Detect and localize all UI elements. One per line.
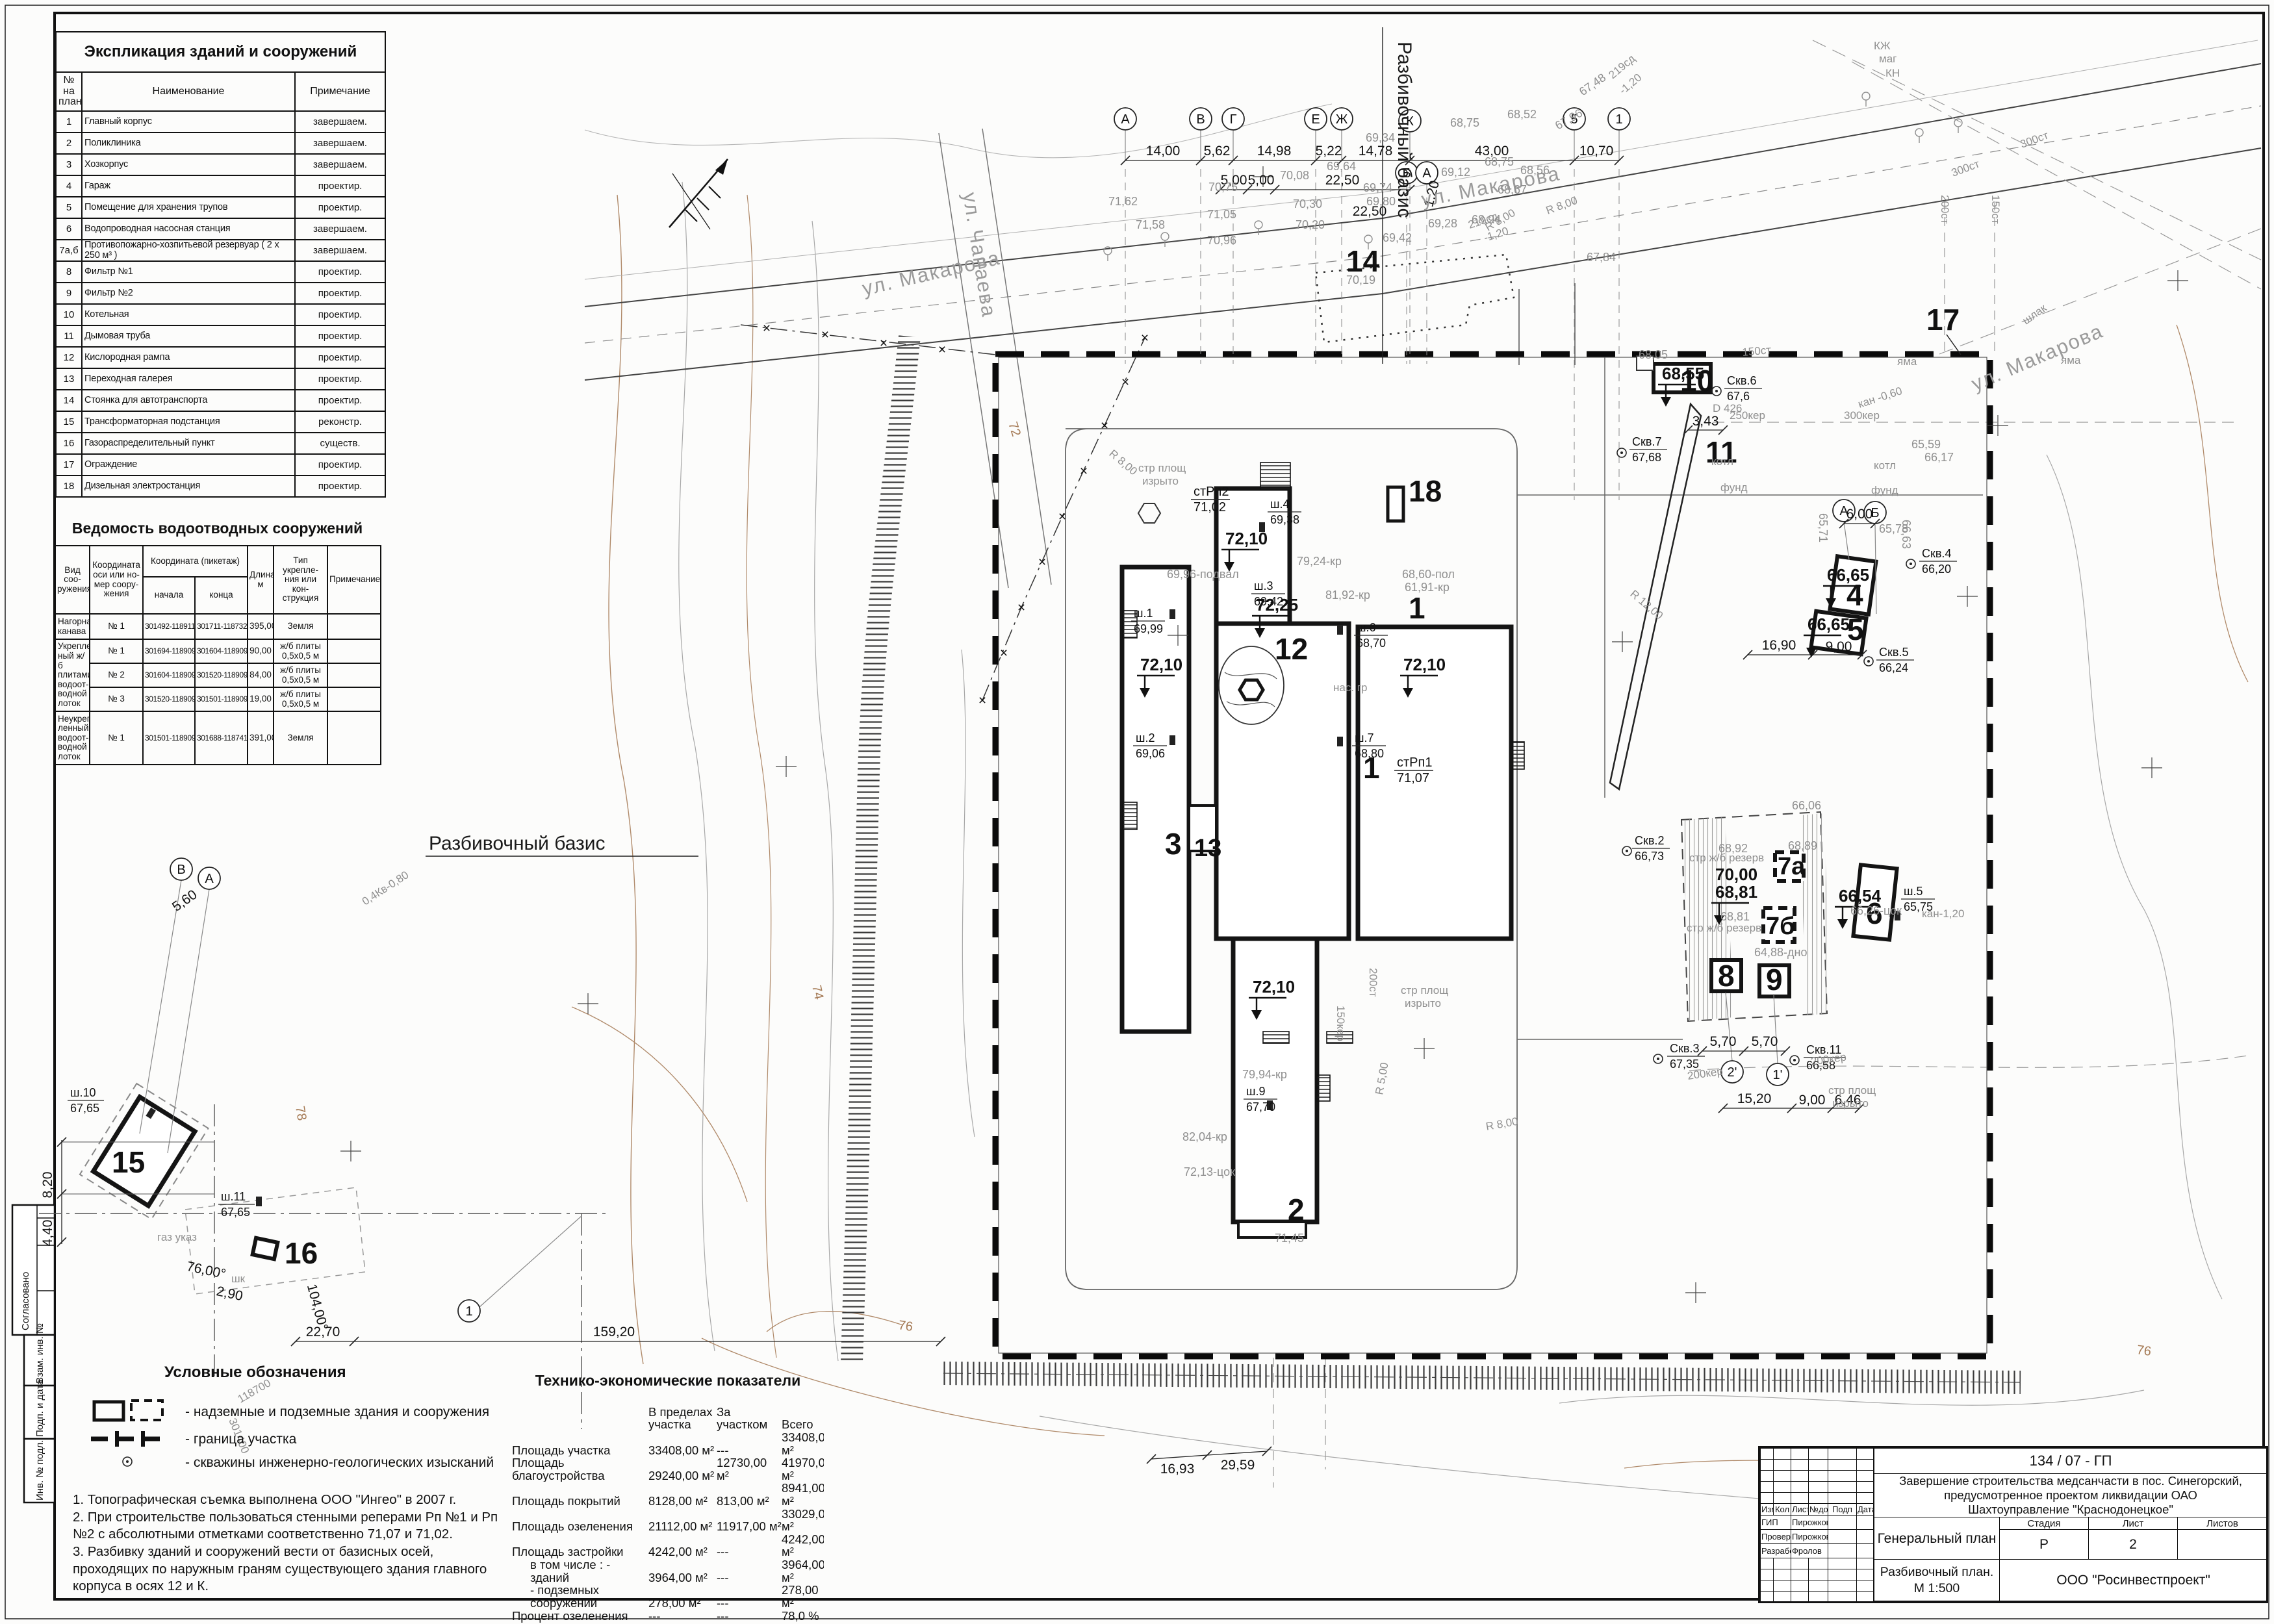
explication-row: 3Хозкорпусзавершаем. <box>56 154 385 175</box>
svg-text:R 5,00: R 5,00 <box>1373 1061 1390 1096</box>
svg-text:шлак: шлак <box>2020 301 2049 327</box>
parking-area <box>1316 255 1514 342</box>
borehole-3: Скв.3 <box>1670 1042 1699 1055</box>
svg-text:69,42: 69,42 <box>1254 595 1283 608</box>
pit-sh11: ш.11 <box>221 1190 246 1203</box>
benchmark-rp1: стРп1 <box>1397 755 1432 770</box>
tep-title: Технико-экономические показатели <box>512 1372 824 1389</box>
elev-68-55: 68,55 <box>1662 364 1704 383</box>
svg-text:70,75: 70,75 <box>1208 181 1238 194</box>
svg-text:кан -0,60: кан -0,60 <box>1856 385 1904 411</box>
legend-underground-building-icon <box>131 1401 162 1420</box>
svg-text:КН: КН <box>1885 67 1900 79</box>
elev-72-10-c: 72,10 <box>1403 655 1446 674</box>
svg-text:стр ж/б резерв: стр ж/б резерв <box>1689 852 1764 864</box>
svg-text:×: × <box>1141 331 1149 346</box>
svg-text:8,20: 8,20 <box>40 1172 55 1199</box>
axis-bubble-e: Е <box>1311 112 1320 127</box>
axis-bubble-g: Г <box>1230 112 1237 127</box>
svg-text:67,65: 67,65 <box>70 1102 99 1115</box>
svg-text:×: × <box>1038 555 1046 570</box>
stairs <box>1123 802 1137 830</box>
svg-text:72: 72 <box>1005 420 1023 438</box>
explication-row: 4Гаражпроектир. <box>56 175 385 197</box>
svg-text:16,90: 16,90 <box>1762 638 1796 653</box>
elev-72-10-d: 72,10 <box>1253 977 1295 996</box>
svg-text:стр площ: стр площ <box>1828 1084 1876 1097</box>
label-building-2: 2 <box>1288 1193 1305 1226</box>
drawing-title: Генеральный план <box>1874 1517 2000 1560</box>
axis-bubble-a: А <box>1121 112 1130 127</box>
svg-text:фунд: фунд <box>1871 484 1898 496</box>
svg-text:5,70: 5,70 <box>1710 1034 1737 1049</box>
svg-text:67,65: 67,65 <box>221 1206 250 1219</box>
title-block-main: 134 / 07 - ГП Завершение строительства м… <box>1874 1448 2268 1601</box>
svg-text:10,70: 10,70 <box>1579 144 1614 159</box>
side-stamp-inv: Инв. № подл. <box>34 1440 45 1501</box>
elev-66-65-a: 66,65 <box>1827 565 1869 585</box>
svg-text:71,07: 71,07 <box>1397 771 1429 785</box>
drainage-row: Нагорная канава № 1301492-118911 301711-… <box>55 614 381 639</box>
borehole-2: Скв.2 <box>1635 834 1664 847</box>
notes: 1. Топографическая съемка выполнена ООО … <box>73 1491 498 1595</box>
svg-text:- надземные и подземные здани: - надземные и подземные здания и сооруже… <box>185 1404 489 1419</box>
axis-bubble-v-left: В <box>177 863 185 877</box>
drawing-sheet: Согласовано Взам. инв. № Подп. и дата Ин… <box>0 0 2274 1624</box>
side-stamp-podp: Подп. и дата <box>34 1379 45 1437</box>
svg-text:×: × <box>978 693 986 708</box>
legend: Условные обозначения - надземные и подзе… <box>91 1364 494 1470</box>
stairs <box>1317 1075 1330 1101</box>
svg-text:65,59: 65,59 <box>1911 438 1941 451</box>
svg-text:67,84: 67,84 <box>1587 251 1616 264</box>
company-name: ООО "Росинвестпроект" <box>2000 1560 2268 1601</box>
explication-row: 12Кислородная рампапроектир. <box>56 347 385 368</box>
svg-text:×: × <box>821 327 829 342</box>
pit-sh6: ш.6 <box>1357 621 1375 634</box>
svg-text:74: 74 <box>809 983 826 1000</box>
small-hexagon <box>1138 503 1160 523</box>
svg-text:150кер: 150кер <box>1335 1006 1347 1041</box>
svg-text:22,50: 22,50 <box>1325 173 1360 188</box>
svg-text:0,4Кв-0,80: 0,4Кв-0,80 <box>360 869 411 907</box>
building-18-diesel <box>1388 487 1403 521</box>
svg-text:71,62: 71,62 <box>1108 195 1138 208</box>
svg-text:70,20: 70,20 <box>1296 218 1325 231</box>
label-building-7b: 7б <box>1766 913 1795 940</box>
svg-text:79,94-кр: 79,94-кр <box>1242 1068 1287 1081</box>
pit-sh10: ш.10 <box>70 1086 96 1099</box>
axis-bubble-a-left: А <box>205 872 214 886</box>
svg-text:66,20: 66,20 <box>1922 563 1951 576</box>
elev-68-81: 68,81 <box>1715 882 1757 902</box>
svg-text:69,34: 69,34 <box>1366 131 1395 144</box>
project-name: Завершение строительства медсанчасти в п… <box>1874 1474 2268 1517</box>
note-3: 3. Разбивку зданий и сооружений вести от… <box>73 1543 498 1595</box>
benchmark-rp2: стРп2 <box>1194 485 1229 499</box>
drainage-row: Укреплен- ный ж/б плитами водоот- водной… <box>55 639 381 663</box>
borehole-5: Скв.5 <box>1879 646 1908 659</box>
svg-text:9,00: 9,00 <box>1826 639 1852 654</box>
street-makarova-3: ул. Макарова <box>1968 319 2106 395</box>
svg-text:14,00: 14,00 <box>1146 144 1181 159</box>
borehole-4: Скв.4 <box>1922 547 1951 560</box>
svg-text:71,58: 71,58 <box>1136 218 1165 231</box>
svg-text:яма: яма <box>1897 355 1917 368</box>
svg-text:200ст: 200ст <box>1367 968 1379 997</box>
borehole-6: Скв.6 <box>1727 374 1756 387</box>
svg-text:- скважины инженерно-геологич: - скважины инженерно-геологических изыск… <box>185 1455 494 1470</box>
axis-bubble-2s: 2' <box>1728 1065 1737 1080</box>
elev-66-54: 66,54 <box>1839 886 1882 906</box>
explication-row: 10Котельнаяпроектир. <box>56 304 385 325</box>
upland-canal: × × × × × × × × × × × × × <box>741 321 1149 708</box>
label-building-1: 1 <box>1409 591 1425 625</box>
svg-text:5,70: 5,70 <box>1752 1034 1778 1049</box>
svg-text:159,20: 159,20 <box>593 1325 635 1339</box>
svg-text:78: 78 <box>292 1105 309 1122</box>
doc-number: 134 / 07 - ГП <box>1874 1449 2268 1474</box>
svg-text:68,80: 68,80 <box>1355 747 1384 760</box>
elev-72-10-b: 72,10 <box>1140 655 1182 674</box>
explication-table: Экспликация зданий и сооружений № на пла… <box>55 31 386 498</box>
svg-text:70,19: 70,19 <box>1346 273 1375 286</box>
svg-text:79,24-кр: 79,24-кр <box>1297 555 1342 568</box>
explication-row: 15Трансформаторная подстанцияреконстр. <box>56 411 385 433</box>
svg-text:фунд: фунд <box>1720 481 1748 494</box>
svg-text:стр площ: стр площ <box>1401 984 1448 996</box>
drainage-row: № 3301520-118909 301501-11890919,00 ж/б … <box>55 687 381 711</box>
label-building-15: 15 <box>112 1145 145 1179</box>
svg-text:300ст: 300ст <box>2019 129 2050 151</box>
svg-text:×: × <box>763 321 771 336</box>
pit-sh3: ш.3 <box>1254 579 1273 592</box>
svg-text:76: 76 <box>2136 1343 2152 1359</box>
axis-bubble-1-bottom: 1 <box>465 1304 472 1319</box>
svg-text:R 8,00: R 8,00 <box>1485 1115 1519 1133</box>
svg-text:газ указ: газ указ <box>157 1231 197 1243</box>
sheets-total <box>2178 1530 2268 1560</box>
svg-text:66,26-цок: 66,26-цок <box>1850 904 1902 917</box>
svg-text:5,22: 5,22 <box>1316 144 1342 159</box>
explication-title: Экспликация зданий и сооружений <box>56 32 385 72</box>
axis-bubble-zh: Ж <box>1336 112 1348 127</box>
drainage-title: Ведомость водоотводных сооружений <box>55 520 380 537</box>
svg-text:69,28: 69,28 <box>1428 217 1457 230</box>
svg-text:68,81: 68,81 <box>1720 910 1750 923</box>
svg-text:4,40: 4,40 <box>40 1220 55 1247</box>
svg-text:14,78: 14,78 <box>1359 144 1393 159</box>
stage-value: Р <box>2000 1530 2089 1560</box>
svg-text:70,96: 70,96 <box>1207 234 1236 247</box>
svg-text:81,92-кр: 81,92-кр <box>1325 589 1370 602</box>
svg-text:яма: яма <box>2061 354 2081 366</box>
svg-text:300ст: 300ст <box>1950 158 1982 179</box>
svg-text:маг: маг <box>1879 53 1897 65</box>
explication-row: 14Стоянка для автотранспортапроектир. <box>56 390 385 411</box>
axis-bubble-v: В <box>1196 112 1205 127</box>
svg-text:×: × <box>1000 646 1008 661</box>
svg-text:×: × <box>1058 509 1066 524</box>
title-block-revisions: ИзмКол Лист№док ПодпДата ГИППирожкова Пр… <box>1760 1448 1874 1602</box>
side-stamp: Согласовано Взам. инв. № Подп. и дата Ин… <box>12 1205 55 1503</box>
svg-text:67,70: 67,70 <box>1246 1100 1275 1113</box>
note-1: 1. Топографическая съемка выполнена ООО … <box>73 1491 498 1509</box>
stairs <box>1513 742 1524 769</box>
svg-text:68,75: 68,75 <box>1485 155 1514 168</box>
svg-text:×: × <box>1101 418 1108 433</box>
svg-text:R 8,00: R 8,00 <box>1106 448 1140 478</box>
explication-row: 6Водопроводная насосная станциязавершаем… <box>56 218 385 240</box>
stairs <box>1263 1032 1289 1043</box>
svg-text:×: × <box>938 342 946 357</box>
svg-text:стр ж/б резерв: стр ж/б резерв <box>1687 922 1761 934</box>
pit-sh7: ш.7 <box>1355 731 1373 744</box>
svg-text:69,38: 69,38 <box>1270 513 1299 526</box>
svg-text:КЖ: КЖ <box>1874 40 1891 52</box>
explication-row: 16Газораспределительный пунктсуществ. <box>56 433 385 454</box>
svg-text:×: × <box>1017 600 1025 615</box>
svg-text:68,05: 68,05 <box>1639 348 1668 361</box>
drawing-subtitle: Разбивочный план. М 1:500 <box>1874 1560 2000 1601</box>
axis-bubble-1s: 1' <box>1773 1068 1783 1082</box>
explication-row: 13Переходная галереяпроектир. <box>56 368 385 390</box>
label-building-3: 3 <box>1165 827 1182 861</box>
svg-text:67,6: 67,6 <box>1727 390 1750 403</box>
drainage-row: Неукреп- ленный водоот- водной лоток № 1… <box>55 711 381 765</box>
stairs <box>1260 463 1290 490</box>
svg-text:69,06: 69,06 <box>1136 747 1165 760</box>
elev-70-00: 70,00 <box>1715 865 1757 884</box>
svg-text:68,70: 68,70 <box>1357 637 1386 650</box>
svg-text:D 426: D 426 <box>1713 402 1742 414</box>
svg-text:15,20: 15,20 <box>1737 1091 1772 1106</box>
svg-text:71,45: 71,45 <box>1275 1232 1304 1245</box>
svg-text:изрыто: изрыто <box>1832 1097 1869 1110</box>
svg-text:72,13-цок: 72,13-цок <box>1184 1165 1235 1178</box>
basis-label-vertical: Разбивочный базис <box>1394 42 1415 218</box>
label-building-7a: 7а <box>1778 853 1806 880</box>
svg-text:нас. гр: нас. гр <box>1333 681 1367 694</box>
svg-text:65,71: 65,71 <box>1817 513 1830 542</box>
explication-row: 8Фильтр №1проектир. <box>56 261 385 283</box>
svg-text:котл: котл <box>1874 459 1896 472</box>
svg-text:66,73: 66,73 <box>1635 850 1664 863</box>
svg-text:×: × <box>1080 464 1088 479</box>
pit-sh5: ш.5 <box>1904 885 1923 898</box>
elev-72-10-a: 72,10 <box>1225 529 1268 548</box>
svg-text:150ст: 150ст <box>1742 344 1772 359</box>
svg-text:67,48: 67,48 <box>1577 71 1608 98</box>
label-building-17: 17 <box>1926 303 1960 336</box>
svg-text:кан-1,20: кан-1,20 <box>1922 907 1964 920</box>
explication-row: 7а,бПротивопожарно-хозпитьевой резервуар… <box>56 240 385 261</box>
svg-text:70,08: 70,08 <box>1280 169 1309 182</box>
svg-text:150ст: 150ст <box>1989 195 2002 224</box>
svg-text:68,89: 68,89 <box>1788 839 1817 852</box>
svg-text:×: × <box>880 336 888 351</box>
pit-sh4: ш.4 <box>1270 498 1289 511</box>
north-arrow <box>669 159 728 229</box>
explication-row: 1Главный корпусзавершаем. <box>56 111 385 133</box>
basis-label-horizontal: Разбивочный базис <box>429 833 606 854</box>
svg-text:29,59: 29,59 <box>1221 1458 1255 1473</box>
label-building-8: 8 <box>1718 959 1735 993</box>
svg-text:67,68: 67,68 <box>1632 451 1661 464</box>
pit-sh2: ш.2 <box>1136 731 1155 744</box>
svg-text:9,00: 9,00 <box>1799 1093 1826 1108</box>
borehole-7: Скв.7 <box>1632 435 1661 448</box>
label-building-13: 13 <box>1194 835 1221 862</box>
legend-borehole-icon <box>123 1457 132 1466</box>
explication-row: 17Ограждениепроектир. <box>56 454 385 476</box>
label-building-9: 9 <box>1766 963 1783 996</box>
svg-text:66,17: 66,17 <box>1924 451 1954 464</box>
building-12-block <box>1216 624 1349 939</box>
svg-text:69,64: 69,64 <box>1327 160 1356 173</box>
svg-text:6,00: 6,00 <box>1846 507 1873 522</box>
svg-text:2,90: 2,90 <box>215 1284 244 1304</box>
svg-text:68,67: 68,67 <box>1498 183 1527 196</box>
svg-text:шк: шк <box>231 1273 246 1285</box>
label-building-18: 18 <box>1409 474 1442 508</box>
svg-text:3,43: 3,43 <box>1693 414 1719 429</box>
svg-text:изрыто: изрыто <box>1142 475 1179 487</box>
legend-surface-building-icon <box>94 1402 123 1420</box>
drainage-table: Ведомость водоотводных сооружений Вид со… <box>55 520 381 765</box>
svg-text:69,99: 69,99 <box>1134 622 1163 635</box>
side-stamp-soglasovano: Согласовано <box>20 1272 31 1330</box>
legend-title: Условные обозначения <box>164 1364 346 1381</box>
svg-text:изрыто: изрыто <box>1405 997 1441 1009</box>
svg-text:68,52: 68,52 <box>1507 108 1537 121</box>
svg-text:котл: котл <box>1711 455 1733 468</box>
svg-text:5,62: 5,62 <box>1204 144 1231 159</box>
svg-text:82,04-кр: 82,04-кр <box>1182 1130 1227 1143</box>
drainage-row: № 2301604-118909 301520-11890984,00 ж/б … <box>55 663 381 687</box>
explication-row: 9Фильтр №2проектир. <box>56 283 385 304</box>
svg-text:200ст: 200ст <box>1939 195 1951 224</box>
svg-text:76: 76 <box>897 1318 913 1334</box>
svg-text:300кер: 300кер <box>1844 409 1880 422</box>
tep-block: Технико-экономические показатели В преде… <box>512 1372 824 1623</box>
svg-text:69,42: 69,42 <box>1383 231 1412 244</box>
borehole-symbols <box>146 387 1915 1206</box>
svg-text:69,74: 69,74 <box>1363 181 1392 194</box>
explication-row: 18Дизельная электростанцияпроектир. <box>56 476 385 497</box>
svg-text:×: × <box>1121 375 1129 390</box>
explication-row: 11Дымовая трубапроектир. <box>56 325 385 347</box>
pit-sh1: ш.1 <box>1134 607 1153 620</box>
svg-text:16,93: 16,93 <box>1160 1462 1195 1477</box>
side-stamp-vzam: Взам. инв. № <box>34 1323 45 1384</box>
svg-text:66,24: 66,24 <box>1879 661 1908 674</box>
svg-text:66,63: 66,63 <box>1900 520 1913 549</box>
svg-text:5,60: 5,60 <box>170 887 200 915</box>
svg-text:69,80: 69,80 <box>1366 195 1396 208</box>
svg-text:61,91-кр: 61,91-кр <box>1405 581 1450 594</box>
building-16-gas-point <box>253 1238 278 1260</box>
explication-row: 2Поликлиниказавершаем. <box>56 133 385 154</box>
svg-text:70,30: 70,30 <box>1293 197 1322 210</box>
svg-text:71,02: 71,02 <box>1194 500 1226 514</box>
svg-text:стр площ: стр площ <box>1138 462 1186 474</box>
note-2: 2. При строительстве пользоваться стенны… <box>73 1509 498 1543</box>
svg-text:14,98: 14,98 <box>1257 144 1292 159</box>
svg-text:76,00°: 76,00° <box>185 1259 227 1282</box>
svg-text:69,96-подвал: 69,96-подвал <box>1167 568 1239 581</box>
title-block: ИзмКол Лист№док ПодпДата ГИППирожкова Пр… <box>1758 1446 2268 1603</box>
svg-text:68,56: 68,56 <box>1520 164 1550 177</box>
svg-text:- граница участка: - граница участка <box>185 1432 297 1447</box>
pit-sh9: ш.9 <box>1246 1085 1265 1098</box>
axis-bubble-a2: А <box>1422 166 1431 181</box>
label-building-12: 12 <box>1275 632 1308 666</box>
svg-text:64,88-дно: 64,88-дно <box>1754 946 1808 959</box>
svg-text:71,05: 71,05 <box>1207 208 1236 221</box>
svg-text:R 8,00: R 8,00 <box>1544 194 1579 217</box>
sheet-number: 2 <box>2089 1530 2178 1560</box>
svg-text:68,60-пол: 68,60-пол <box>1402 568 1455 581</box>
explication-row: 5Помещение для хранения труповпроектир. <box>56 197 385 218</box>
svg-text:69,12: 69,12 <box>1441 166 1470 179</box>
label-building-16: 16 <box>285 1236 318 1270</box>
elev-66-65-b: 66,65 <box>1808 615 1850 634</box>
svg-text:66,06: 66,06 <box>1792 799 1821 812</box>
svg-text:68,75: 68,75 <box>1450 116 1479 129</box>
axis-bubble-1: 1 <box>1615 112 1622 127</box>
svg-text:5,00: 5,00 <box>1248 173 1275 188</box>
